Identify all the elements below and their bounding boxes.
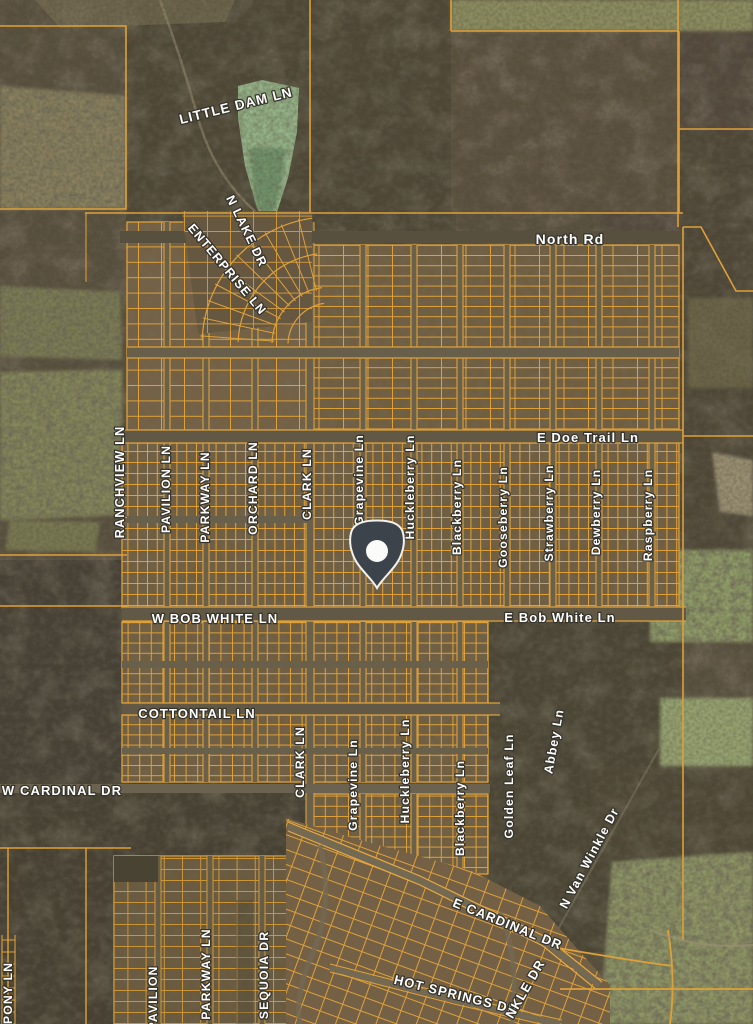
svg-text:Golden Leaf Ln: Golden Leaf Ln: [502, 734, 516, 839]
svg-text:E Doe Trail Ln: E Doe Trail Ln: [537, 430, 639, 445]
svg-text:Gooseberry Ln: Gooseberry Ln: [496, 466, 510, 568]
svg-text:CLARK LN: CLARK LN: [293, 726, 307, 798]
svg-text:COTTONTAIL LN: COTTONTAIL LN: [138, 706, 256, 721]
svg-text:Blackberry Ln: Blackberry Ln: [450, 459, 464, 555]
svg-text:PAVILION: PAVILION: [146, 965, 160, 1024]
svg-text:Strawberry Ln: Strawberry Ln: [542, 465, 556, 562]
svg-text:W CARDINAL DR: W CARDINAL DR: [2, 783, 122, 798]
svg-text:Grapevine Ln: Grapevine Ln: [352, 434, 366, 526]
svg-text:North Rd: North Rd: [536, 231, 605, 247]
svg-text:Huckleberry Ln: Huckleberry Ln: [403, 435, 417, 540]
svg-text:PAVILION LN: PAVILION LN: [159, 445, 173, 533]
svg-text:RANCHVIEW LN: RANCHVIEW LN: [112, 426, 127, 539]
svg-text:PARKWAY LN: PARKWAY LN: [199, 928, 213, 1019]
svg-text:Huckleberry Ln: Huckleberry Ln: [398, 719, 412, 824]
svg-text:PARKWAY LN: PARKWAY LN: [198, 451, 212, 542]
svg-text:Raspberry Ln: Raspberry Ln: [641, 469, 655, 561]
svg-text:Dewberry Ln: Dewberry Ln: [589, 469, 603, 556]
svg-text:PONY LN: PONY LN: [1, 962, 15, 1024]
svg-text:W BOB WHITE LN: W BOB WHITE LN: [152, 611, 279, 626]
svg-text:ORCHARD LN: ORCHARD LN: [246, 441, 260, 535]
svg-text:Blackberry Ln: Blackberry Ln: [453, 760, 467, 856]
svg-text:Grapevine Ln: Grapevine Ln: [346, 739, 360, 831]
svg-text:SEQUOIA DR: SEQUOIA DR: [257, 931, 271, 1019]
svg-text:CLARK LN: CLARK LN: [300, 448, 314, 520]
svg-text:E Bob White Ln: E Bob White Ln: [504, 610, 615, 625]
